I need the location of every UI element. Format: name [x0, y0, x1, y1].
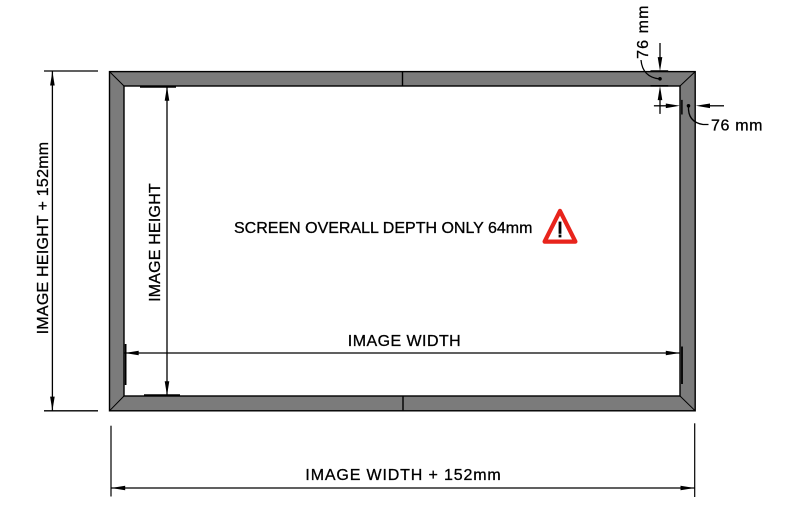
svg-text:SCREEN OVERALL DEPTH ONLY 64mm: SCREEN OVERALL DEPTH ONLY 64mm	[234, 220, 532, 237]
svg-text:76 mm: 76 mm	[635, 4, 652, 58]
svg-text:IMAGE HEIGHT: IMAGE HEIGHT	[147, 183, 164, 302]
svg-text:IMAGE WIDTH: IMAGE WIDTH	[348, 333, 461, 350]
svg-text:IMAGE HEIGHT + 152mm: IMAGE HEIGHT + 152mm	[35, 142, 52, 335]
svg-text:IMAGE WIDTH + 152mm: IMAGE WIDTH + 152mm	[305, 467, 501, 484]
svg-text:76 mm: 76 mm	[711, 118, 763, 135]
